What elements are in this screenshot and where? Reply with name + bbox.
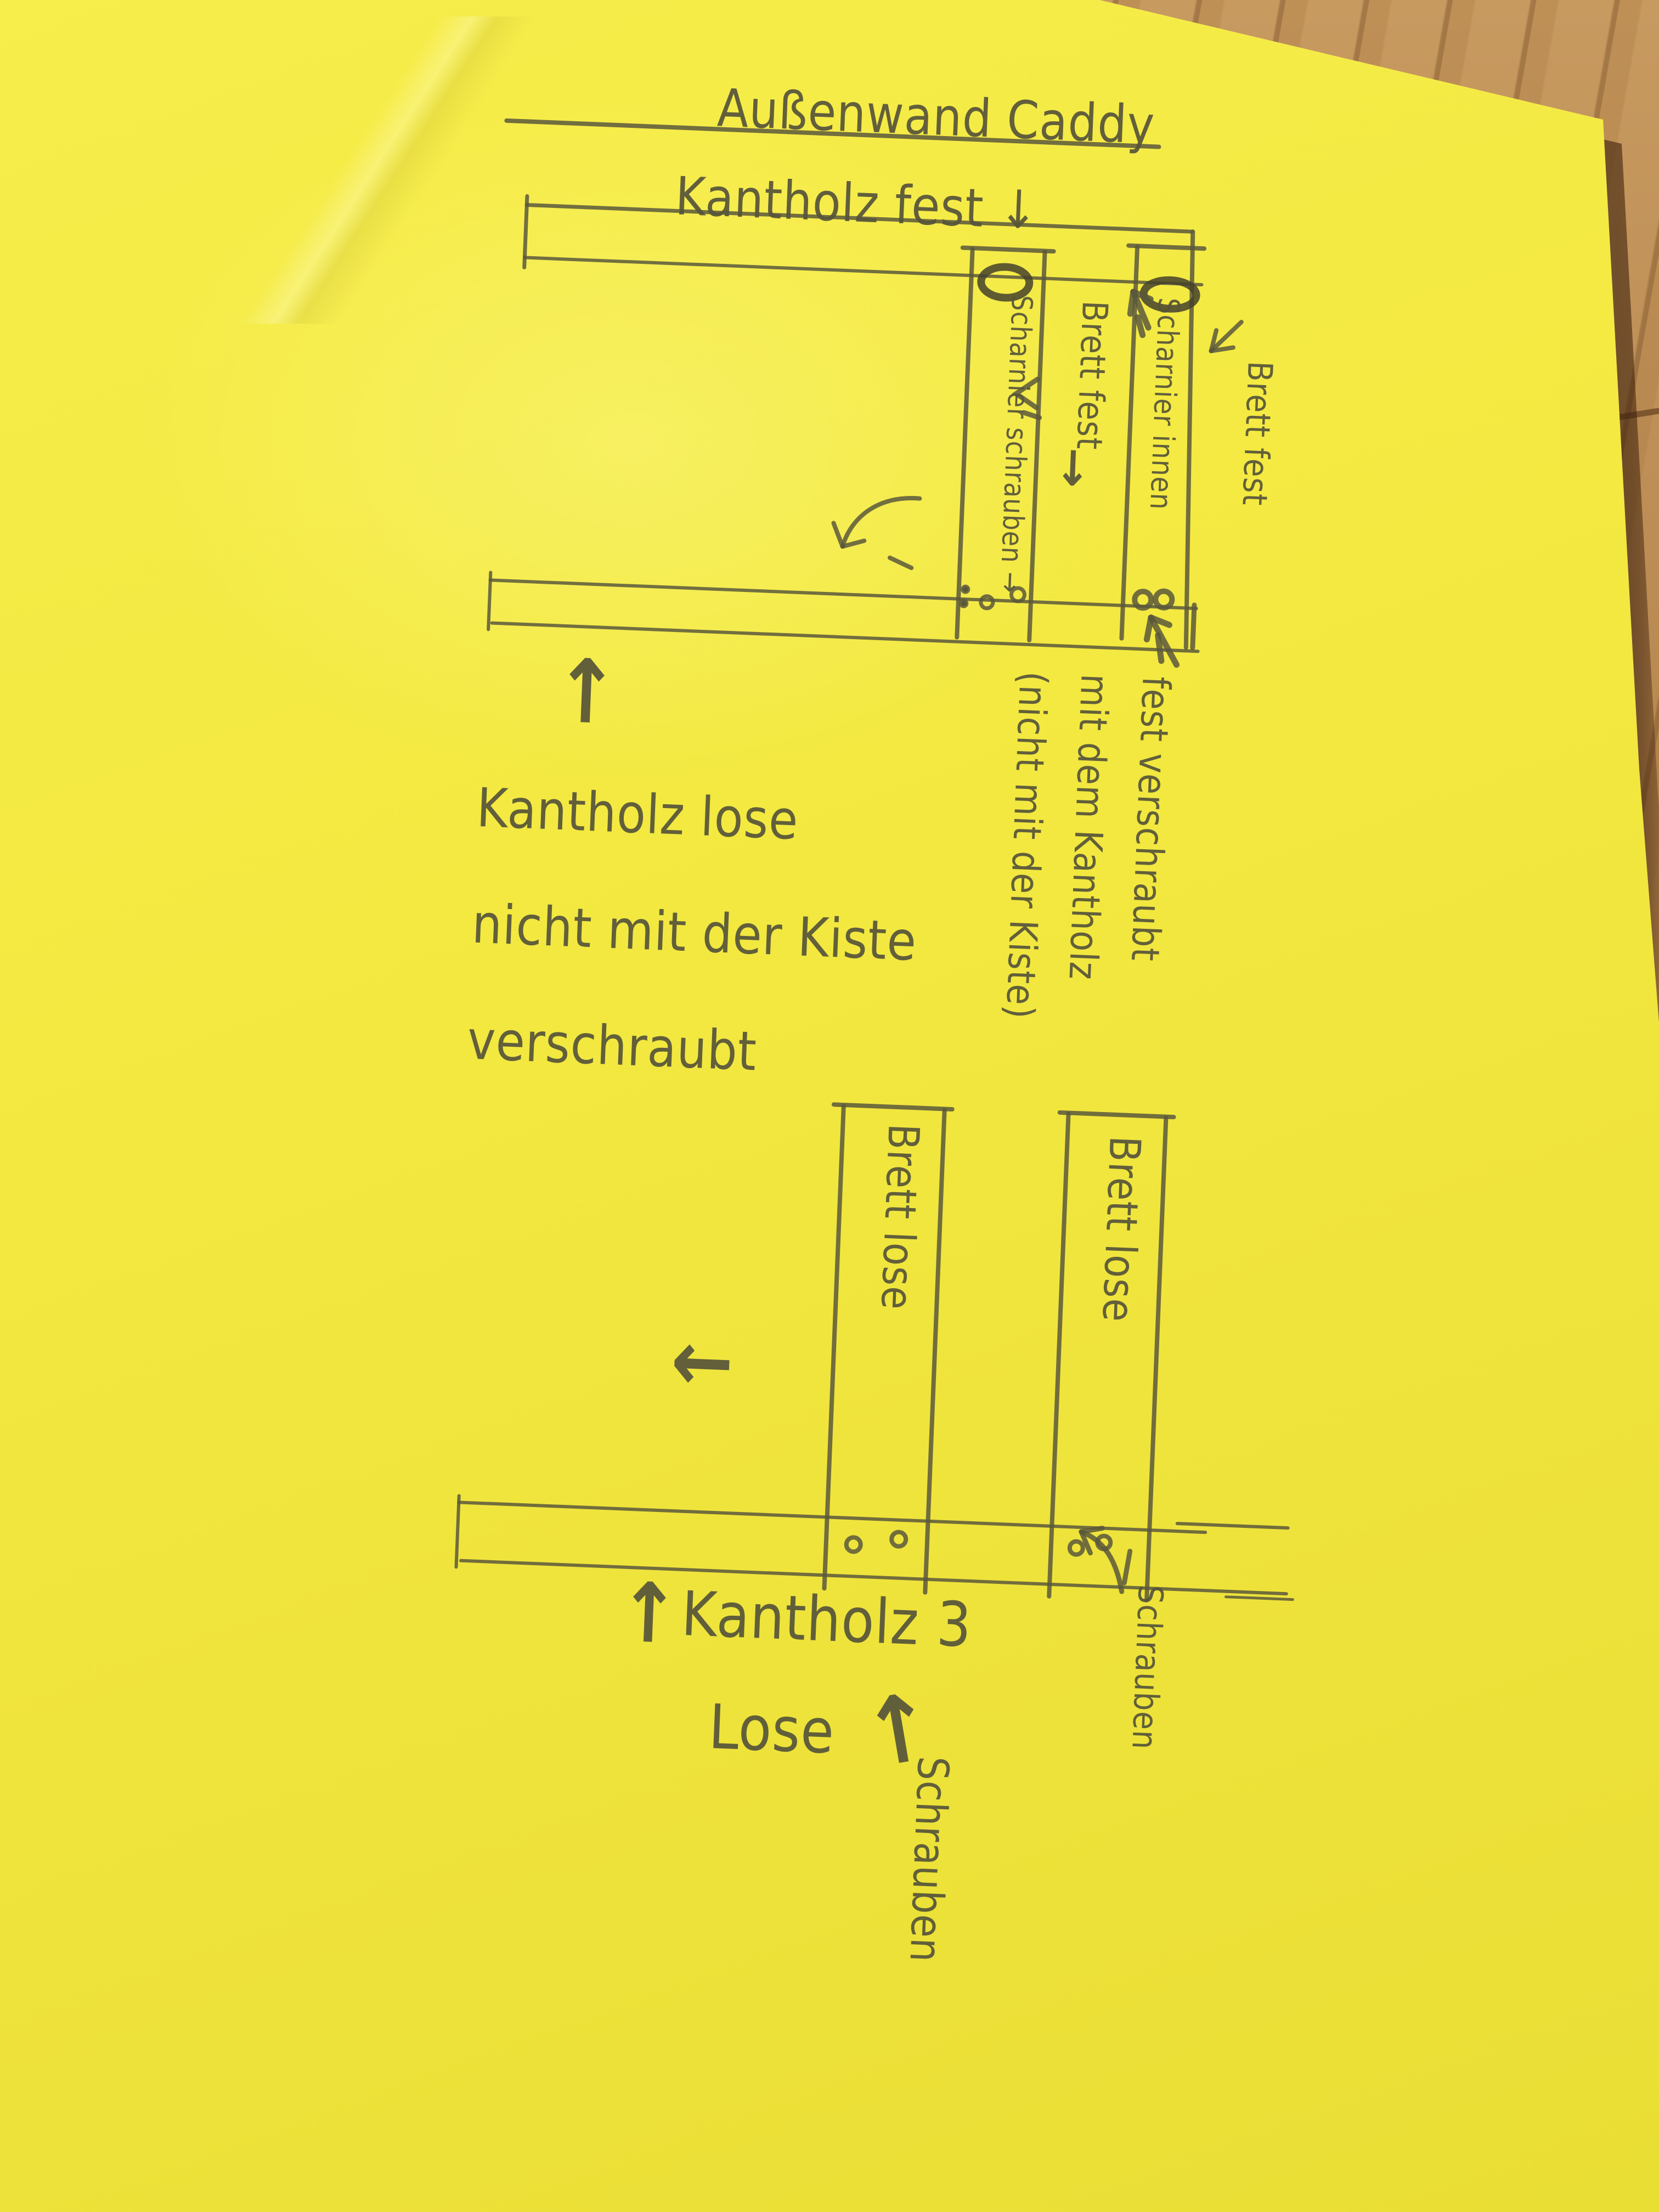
up-arrow-icon: ↑ bbox=[617, 1565, 681, 1662]
schrauben-right-label: Schrauben bbox=[1125, 1584, 1170, 1751]
note-line: nicht mit der Kiste bbox=[470, 866, 919, 1000]
hinge-icon bbox=[980, 266, 1030, 298]
note-line: Kantholz lose bbox=[475, 750, 924, 884]
arrow-down-left-icon bbox=[1211, 321, 1242, 352]
left-arrow-icon: ← bbox=[669, 1312, 736, 1412]
fest-verschraubt-note: fest verschraubt mit dem Kantholz (nicht… bbox=[989, 670, 1187, 1025]
bottom-diagram-bar-kantholz-3 bbox=[456, 1494, 1296, 1600]
schrauben-mid-label: Schrauben bbox=[900, 1756, 957, 1963]
kantholz-lose-note: Kantholz lose nicht mit der Kiste versch… bbox=[465, 750, 924, 1116]
screw-icons-bottom-bar bbox=[846, 1526, 1110, 1562]
up-arrow-icon: ↑ bbox=[552, 640, 621, 744]
photo-of-hand-drawn-sketch: Außenwand Caddy Kantholz fest ↓ Scharnie… bbox=[0, 0, 1659, 2212]
hooked-arrow-left-icon bbox=[832, 495, 919, 568]
kantholz-3-label: Kantholz 3 bbox=[680, 1579, 973, 1661]
pencil-sketch: Außenwand Caddy Kantholz fest ↓ Scharnie… bbox=[0, 0, 1659, 2212]
note-line: verschraubt bbox=[465, 982, 915, 1116]
brett-fest-outer-label: Brett fest bbox=[1235, 360, 1280, 506]
brett-lose-right-label: Brett lose bbox=[1092, 1135, 1149, 1323]
arrow-up-left-icon bbox=[1146, 618, 1178, 665]
down-arrow-icon: ↓ bbox=[1054, 441, 1092, 498]
lose-label: Lose bbox=[708, 1692, 836, 1768]
brett-lose-left-label: Brett lose bbox=[871, 1123, 927, 1311]
brett-fest-mid-label: Brett fest bbox=[1068, 300, 1114, 451]
